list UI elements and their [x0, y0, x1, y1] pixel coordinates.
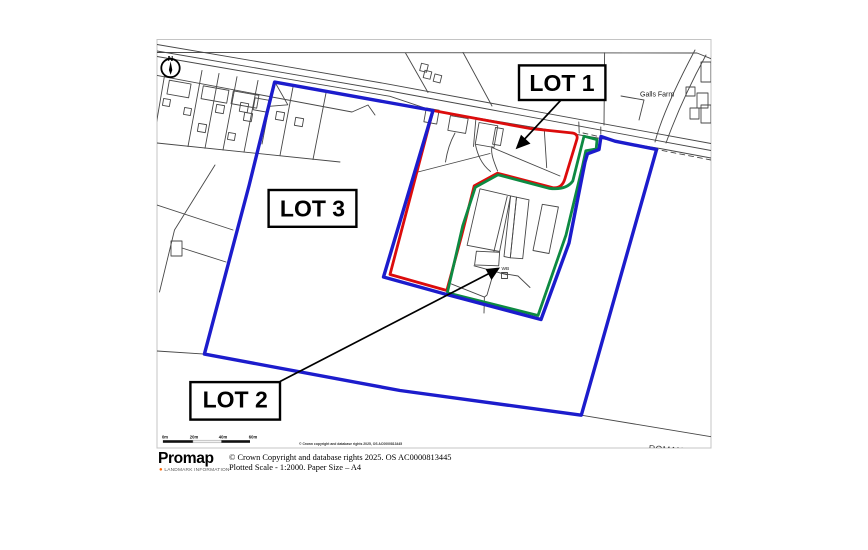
svg-text:© Crown copyright and database: © Crown copyright and database rights 20…	[299, 442, 402, 446]
svg-text:Galls Farm: Galls Farm	[640, 92, 674, 99]
svg-text:0m: 0m	[162, 435, 168, 440]
svg-text:20m: 20m	[190, 435, 199, 440]
svg-text:LOT 3: LOT 3	[280, 196, 345, 222]
svg-text:LOT 2: LOT 2	[203, 386, 268, 412]
svg-text:40m: 40m	[219, 435, 228, 440]
svg-text:N: N	[168, 54, 173, 63]
svg-text:WB: WB	[502, 266, 510, 272]
svg-text:LOT 1: LOT 1	[529, 70, 594, 96]
svg-text:60m: 60m	[249, 435, 258, 440]
